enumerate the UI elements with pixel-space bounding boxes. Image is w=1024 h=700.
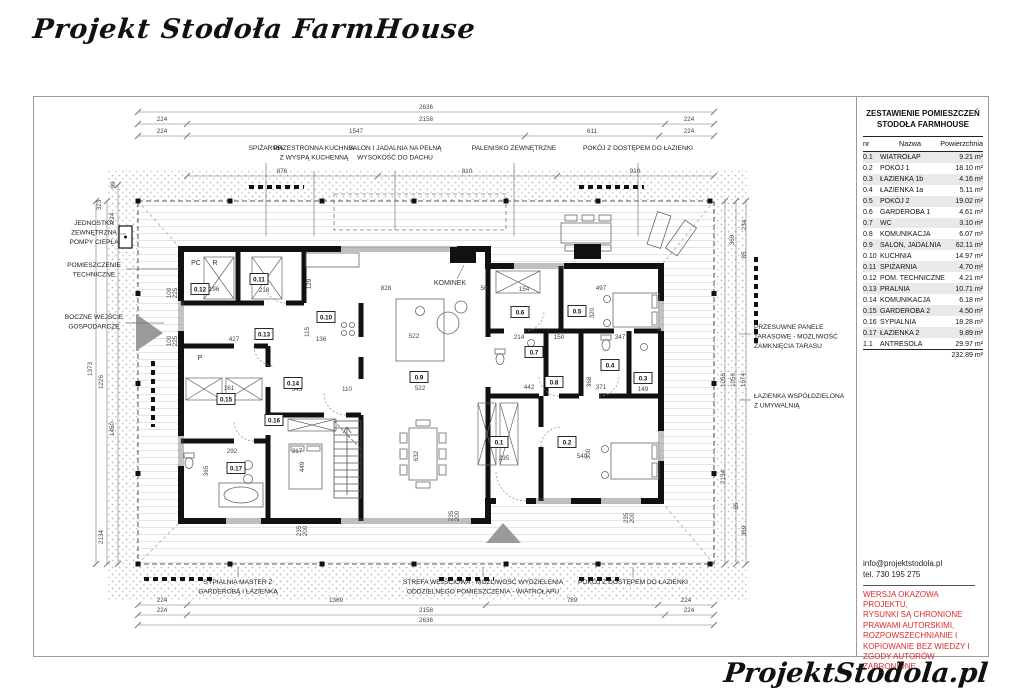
room-marker: 0.2 [558,437,576,448]
room-marker: 0.9 [410,372,428,383]
dim-label: 85 [733,502,740,510]
floor-plan: 2636224215822422415476112248768109102241… [34,97,856,658]
callout-label: Z UMYWALNIĄ [754,403,800,410]
dim-label: 323 [96,199,103,210]
dim-label: 225 [172,287,179,298]
dim-label: 136 [316,336,327,343]
dim-label: 224 [684,128,695,135]
dim-label: 1056 [730,373,737,388]
schedule-row: 0.15GARDEROBA 24.50 m² [863,305,983,316]
dim-label: 224 [157,116,168,123]
schedule-title-line2: STODOŁA FARMHOUSE [863,120,983,131]
drawing-sheet: Projekt Stodoła FarmHouse [0,0,1024,700]
dim-label: 2636 [419,617,434,624]
dim-label: 224 [157,128,168,135]
interior-label: KOMINEK [434,280,467,287]
dim-label: 317 [292,448,303,455]
dim-label: 442 [524,384,535,391]
dim-label: 149 [638,386,649,393]
dim-label: 99 [110,181,117,189]
schedule-row: 0.16SYPIALNIA18.28 m² [863,316,983,327]
callout-label: PALENISKO ZEWNĘTRZNE [472,145,557,152]
dim-label: 1056 [720,373,727,388]
col-area: Powierzchnia [940,139,983,148]
col-nr: nr [863,139,880,148]
schedule-title-line1: ZESTAWIENIE POMIESZCZEŃ [863,109,983,120]
drawing-frame: 2636224215822422415476112248768109102241… [33,96,989,657]
room-marker: 0.6 [511,307,529,318]
dim-label: 1450 [109,422,116,437]
dim-label: 214 [514,334,525,341]
room-marker: 0.5 [568,306,586,317]
dim-label: 1373 [87,362,94,377]
dim-label: 225 [172,335,179,346]
callout-label: PRZESTRONNA KUCHNIA [274,145,356,152]
project-title: Projekt Stodoła FarmHouse [31,14,477,45]
callout-label: ZAMKNIĘCIA TARASU [754,343,822,350]
dim-label: 2158 [419,116,434,123]
dim-label: 224 [157,597,168,604]
room-marker: 0.12 [191,284,209,295]
dim-label: 115 [304,326,311,337]
divider [863,585,975,586]
interior-label: PC [191,260,201,267]
dim-label: 497 [596,285,607,292]
room-marker: 0.13 [255,329,273,340]
dim-label: 369 [729,234,736,245]
schedule-row: 0.5POKÓJ 219.02 m² [863,196,983,207]
dim-label: 1369 [329,597,344,604]
schedule-row: 0.11SPIŻARNIA4.70 m² [863,261,983,272]
schedule-row: 0.10KUCHNIA14.97 m² [863,250,983,261]
schedule-total: 232.89 m² [863,350,983,361]
col-name: Nazwa [880,139,940,148]
room-marker: 0.8 [545,377,563,388]
schedule-row: 0.6GARDEROBA 14.61 m² [863,207,983,218]
fireplace [450,247,476,263]
schedule-row: 0.8KOMUNIKACJA6.07 m² [863,228,983,239]
schedule-row: 0.2POKÓJ 118.10 m² [863,163,983,174]
dim-label: 200 [629,512,636,523]
room-marker: 0.11 [250,274,268,285]
svg-text:0.9: 0.9 [415,375,424,382]
svg-text:0.17: 0.17 [230,466,243,473]
dim-label: 522 [415,385,426,392]
callout-label: ŁAZIENKA WSPÓŁDZIELONA [754,391,845,400]
dim-label: 522 [409,333,420,340]
callout-label: JEDNOSTKA [74,220,114,227]
callout-label: WYSOKOŚĆ DO DACHU [357,153,433,162]
callout-label: POKÓJ Z DOSTĘPEM DO ŁAZIENKI [578,577,688,586]
callout-label: SYPIALNIA MASTER Z [204,579,273,586]
dim-label: 200 [454,510,461,521]
schedule-row: 0.7WC3.10 m² [863,218,983,229]
room-marker: 0.16 [265,415,283,426]
svg-text:0.13: 0.13 [258,332,271,339]
dim-label: 369 [741,525,748,536]
dim-label: 224 [681,597,692,604]
dim-label: 196 [209,286,220,293]
callout-label: POMPY CIEPŁA [70,239,120,246]
dim-label: 1547 [349,128,364,135]
svg-text:0.16: 0.16 [268,418,281,425]
callout-label: GARDEROBĄ I ŁAZIENKĄ [198,589,278,596]
dim-label: 371 [596,384,607,391]
callout-label: BOCZNE WEJŚCIE [65,312,124,321]
dim-label: 234 [741,219,748,230]
dim-label: 2636 [419,104,434,111]
schedule-rows: 0.1WIATROŁAP9.21 m²0.2POKÓJ 118.10 m²0.3… [863,151,983,351]
dim-label: 2158 [419,607,434,614]
svg-text:0.7: 0.7 [530,350,539,357]
schedule-row: 1.1ANTRESOLA29.97 m² [863,338,983,349]
dim-label: 320 [589,307,596,318]
contact-email[interactable]: info@projektstodola.pl [863,559,983,570]
dim-label: 611 [587,128,598,135]
dim-label: 50 [480,285,488,292]
dim-label: 129 [306,278,313,289]
schedule-header: nr Nazwa Powierzchnia [863,136,983,150]
dim-label: 224 [684,607,695,614]
dim-label: 828 [381,285,392,292]
svg-text:0.3: 0.3 [639,376,648,383]
dim-label: 427 [229,336,240,343]
schedule-row: 0.14KOMUNIKACJA6.18 m² [863,294,983,305]
dim-label: 161 [224,385,235,392]
callout-label: PRZESUWNE PANELE [754,324,824,331]
svg-text:0.10: 0.10 [320,315,333,322]
dim-label: 789 [567,597,578,604]
room-marker: 0.14 [284,378,302,389]
room-marker: 0.4 [601,360,619,371]
callout-label: ZEWNĘTRZNA [71,230,117,237]
callout-label: POMIESZCZENIE [67,262,121,269]
schedule-row: 0.12POM. TECHNICZNE4.21 m² [863,272,983,283]
outdoor-hearth [574,244,601,259]
dim-label: 224 [684,116,695,123]
schedule-row: 0.1WIATROŁAP9.21 m² [863,152,983,163]
svg-text:0.11: 0.11 [253,277,265,284]
svg-text:0.8: 0.8 [550,380,559,387]
interior-label: P [198,355,203,362]
contact-phone: tel. 730 195 275 [863,570,983,581]
callout-label: Z WYSPĄ KUCHENNĄ [280,155,349,162]
callout-label: TECHNICZNE [73,272,116,279]
dim-label: 224 [157,607,168,614]
schedule-row: 0.4ŁAZIENKA 1a5.11 m² [863,185,983,196]
svg-text:0.2: 0.2 [563,440,572,447]
svg-text:0.4: 0.4 [606,363,615,370]
room-marker: 0.15 [217,394,235,405]
room-schedule: ZESTAWIENIE POMIESZCZEŃ STODOŁA FARMHOUS… [863,109,983,361]
dim-label: 110 [342,386,353,393]
dim-label: 876 [277,168,288,175]
room-marker: 0.10 [317,312,335,323]
dim-label: 1226 [98,375,105,390]
dim-label: 154 [519,286,530,293]
callout-label: POKÓJ Z DOSTĘPEM DO ŁAZIENKI [583,143,693,152]
heat-pump-unit [119,226,132,248]
svg-text:0.15: 0.15 [220,397,233,404]
dim-label: 368 [586,376,593,387]
dim-label: 218 [259,287,270,294]
schedule-row: 0.17ŁAZIENKA 29.89 m² [863,327,983,338]
callout-label: ODDZIELNEGO POMIESZCZENIA - WIATROŁAPU [407,589,560,596]
callout-label: SALON I JADALNIA NA PEŁNĄ [348,145,442,152]
svg-text:0.12: 0.12 [194,287,207,294]
callout-label: GOSPODARCZE [68,324,120,331]
brand-logo[interactable]: ProjektStodola.pl [723,658,990,689]
callout-label: STREFA WEJŚCIOWA - MOŻLIWOŚĆ WYDZIELENIA [403,577,564,586]
dim-label: 810 [462,168,473,175]
svg-text:0.6: 0.6 [516,310,525,317]
schedule-row: 0.13PRALNIA10.71 m² [863,283,983,294]
svg-text:0.1: 0.1 [495,440,504,447]
room-marker: 0.1 [490,437,508,448]
dim-label: 85 [741,251,748,259]
dim-label: 235 [499,455,510,462]
dim-label: 300 [585,448,592,459]
svg-text:0.14: 0.14 [287,381,300,388]
dim-label: 365 [203,465,210,476]
schedule-row: 0.9SALON, JADALNIA62.11 m² [863,239,983,250]
room-marker: 0.17 [227,463,245,474]
dim-label: 910 [630,168,641,175]
svg-text:0.5: 0.5 [573,309,582,316]
room-marker: 0.7 [525,347,543,358]
interior-label: R [212,260,217,267]
dim-label: 449 [299,461,306,472]
dim-label: 292 [227,448,238,455]
dim-label: 150 [554,334,565,341]
dim-label: 2134 [98,530,105,545]
dim-label: 347 [615,334,626,341]
callout-label: TARASOWE - MOŻLIWOŚĆ [754,332,838,341]
dim-label: 2134 [720,470,727,485]
dim-label: 1674 [740,373,747,388]
dim-label: 200 [302,525,309,536]
room-marker: 0.3 [634,373,652,384]
info-panel: ZESTAWIENIE POMIESZCZEŃ STODOŁA FARMHOUS… [856,97,988,656]
schedule-row: 0.3ŁAZIENKA 1b4.16 m² [863,174,983,185]
dim-label: 632 [413,450,420,461]
contact-block: info@projektstodola.pl tel. 730 195 275 … [863,559,983,673]
